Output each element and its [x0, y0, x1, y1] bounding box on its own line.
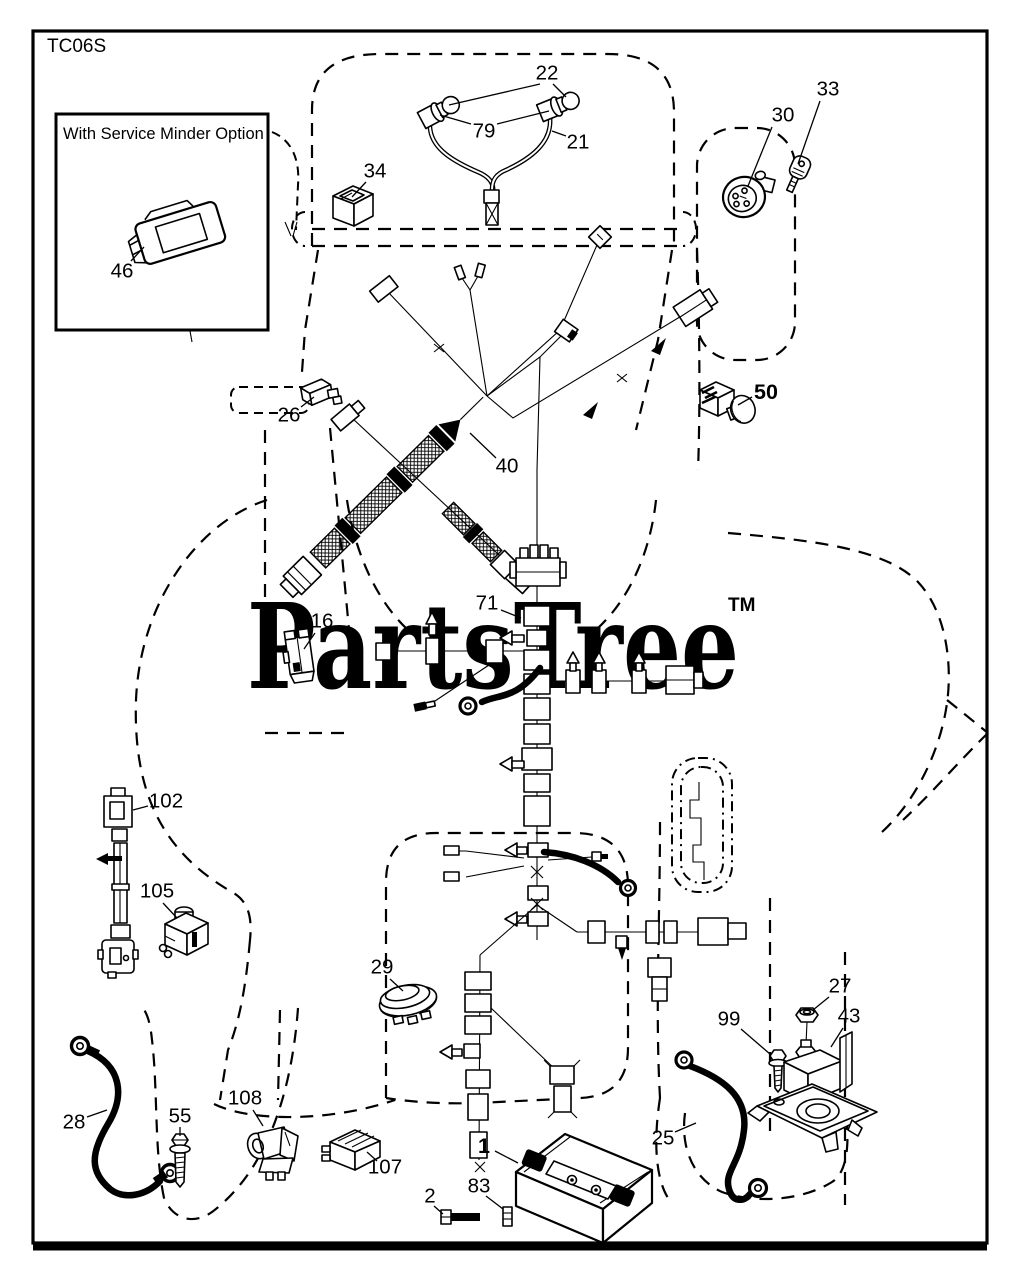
callout-leader-25	[675, 1123, 696, 1132]
component-105-illustration	[160, 907, 209, 958]
diagram-code: TC06S	[47, 36, 106, 57]
callout-label-33: 33	[817, 78, 840, 101]
arrow-icon	[500, 757, 524, 771]
headlight-socket-left	[417, 92, 463, 129]
callout-label-105: 105	[140, 880, 174, 903]
callout-leader-22	[449, 84, 540, 105]
callout-leader-27	[813, 997, 829, 1010]
callout-label-40: 40	[496, 455, 519, 478]
callout-label-50: 50	[754, 380, 778, 404]
callout-label-30: 30	[772, 104, 795, 127]
callout-leader-108	[253, 1110, 263, 1126]
callout-leader-40	[470, 433, 496, 458]
callout-label-22: 22	[536, 62, 559, 85]
callout-leader-21	[552, 131, 566, 136]
callout-label-55: 55	[169, 1105, 192, 1128]
callout-label-71: 71	[476, 592, 499, 615]
arrow-icon	[440, 1045, 462, 1059]
service-minder-inset: With Service Minder Option	[56, 114, 268, 330]
callout-label-99: 99	[718, 1008, 741, 1031]
callout-label-26: 26	[278, 404, 301, 427]
callout-label-34: 34	[364, 160, 387, 183]
callout-label-21: 21	[567, 131, 590, 154]
nut-27-illustration	[796, 1008, 818, 1022]
light-switch-illustration	[333, 186, 373, 226]
callout-label-29: 29	[371, 956, 394, 979]
callout-label-25: 25	[652, 1127, 675, 1150]
multi-pin-connector	[510, 545, 566, 586]
callout-label-16: 16	[311, 610, 334, 633]
relay-108-illustration	[244, 1127, 298, 1180]
callout-label-83: 83	[468, 1175, 491, 1198]
callout-label-27: 27	[829, 975, 852, 998]
ignition-key-illustration	[781, 154, 812, 195]
callout-leader-28	[87, 1110, 107, 1117]
callout-leader-83	[486, 1196, 503, 1209]
watermark-tm: TM	[728, 595, 755, 616]
wiring-diagram-canvas: TC06S PartsTree TM	[0, 0, 1016, 1280]
switch-50-illustration	[700, 382, 759, 428]
callout-leader-79	[440, 115, 471, 124]
callout-leader-1	[495, 1151, 518, 1163]
inset-title: With Service Minder Option	[63, 125, 264, 143]
battery-illustration	[516, 1134, 652, 1243]
main-harness-illustration	[278, 226, 720, 600]
terminal-83-illustration	[503, 1207, 512, 1226]
arrow-icon	[505, 843, 527, 857]
callout-leader-102	[133, 806, 148, 810]
headlight-socket-right	[536, 88, 582, 122]
bolt-2-illustration	[441, 1210, 480, 1224]
headlight-connector	[484, 190, 499, 203]
callout-label-79: 79	[473, 120, 496, 143]
solenoid-43-illustration	[748, 1022, 877, 1152]
callout-label-107: 107	[368, 1156, 402, 1179]
callout-leader-33	[798, 101, 820, 164]
ignition-switch-illustration	[719, 168, 783, 221]
headlight-harness-illustration	[417, 88, 582, 225]
callout-leader-99	[741, 1029, 770, 1054]
callout-label-2: 2	[424, 1185, 435, 1208]
callout-leader-22	[553, 84, 566, 97]
callout-label-1: 1	[478, 1134, 490, 1158]
callout-label-43: 43	[838, 1005, 861, 1028]
callout-label-108: 108	[228, 1087, 262, 1110]
callout-label-46: 46	[111, 260, 134, 283]
callout-label-102: 102	[149, 790, 183, 813]
harness-branches	[370, 226, 720, 548]
connector-26-illustration	[300, 376, 342, 409]
fuse-holder-illustration	[96, 788, 138, 978]
callout-label-28: 28	[63, 1111, 86, 1134]
